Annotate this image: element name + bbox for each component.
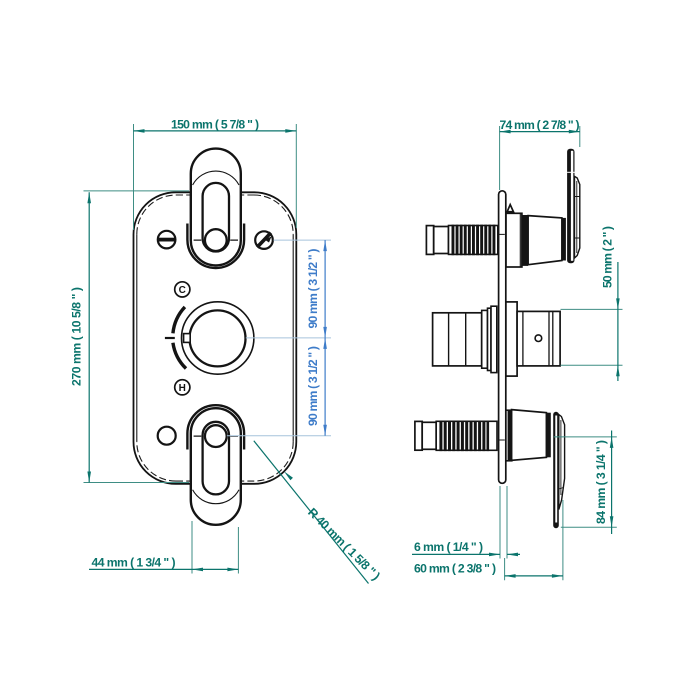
svg-text:H: H bbox=[179, 383, 186, 394]
svg-text:84 mm ( 3 1/4 " ): 84 mm ( 3 1/4 " ) bbox=[594, 440, 608, 524]
svg-text:270 mm ( 10 5/8 " ): 270 mm ( 10 5/8 " ) bbox=[70, 287, 84, 386]
svg-text:50 mm ( 2 " ): 50 mm ( 2 " ) bbox=[600, 226, 614, 288]
svg-text:6 mm ( 1/4 " ): 6 mm ( 1/4 " ) bbox=[414, 540, 483, 554]
svg-text:90 mm ( 3 1/2 " ): 90 mm ( 3 1/2 " ) bbox=[306, 249, 320, 329]
svg-text:150 mm ( 5 7/8 " ): 150 mm ( 5 7/8 " ) bbox=[171, 117, 259, 131]
svg-text:90 mm ( 3 1/2 " ): 90 mm ( 3 1/2 " ) bbox=[306, 346, 320, 426]
svg-text:60 mm ( 2 3/8 " ): 60 mm ( 2 3/8 " ) bbox=[414, 562, 496, 576]
svg-text:44 mm ( 1 3/4 " ): 44 mm ( 1 3/4 " ) bbox=[92, 555, 176, 569]
svg-text:74 mm ( 2 7/8 " ): 74 mm ( 2 7/8 " ) bbox=[500, 118, 580, 132]
svg-text:C: C bbox=[179, 285, 186, 296]
